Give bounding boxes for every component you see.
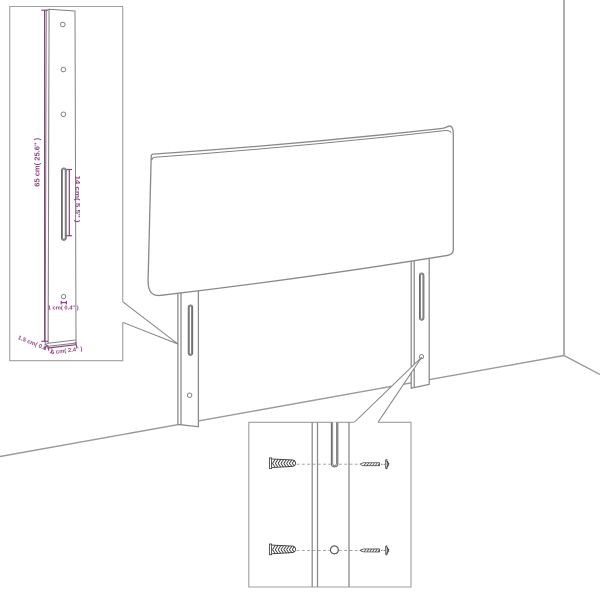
- svg-text:1 cm( 0.4'' ): 1 cm( 0.4'' ): [48, 306, 79, 312]
- svg-text:14 cm( 5.5'' ): 14 cm( 5.5'' ): [73, 176, 79, 223]
- svg-text:65 cm( 25.6'' ): 65 cm( 25.6'' ): [35, 138, 42, 187]
